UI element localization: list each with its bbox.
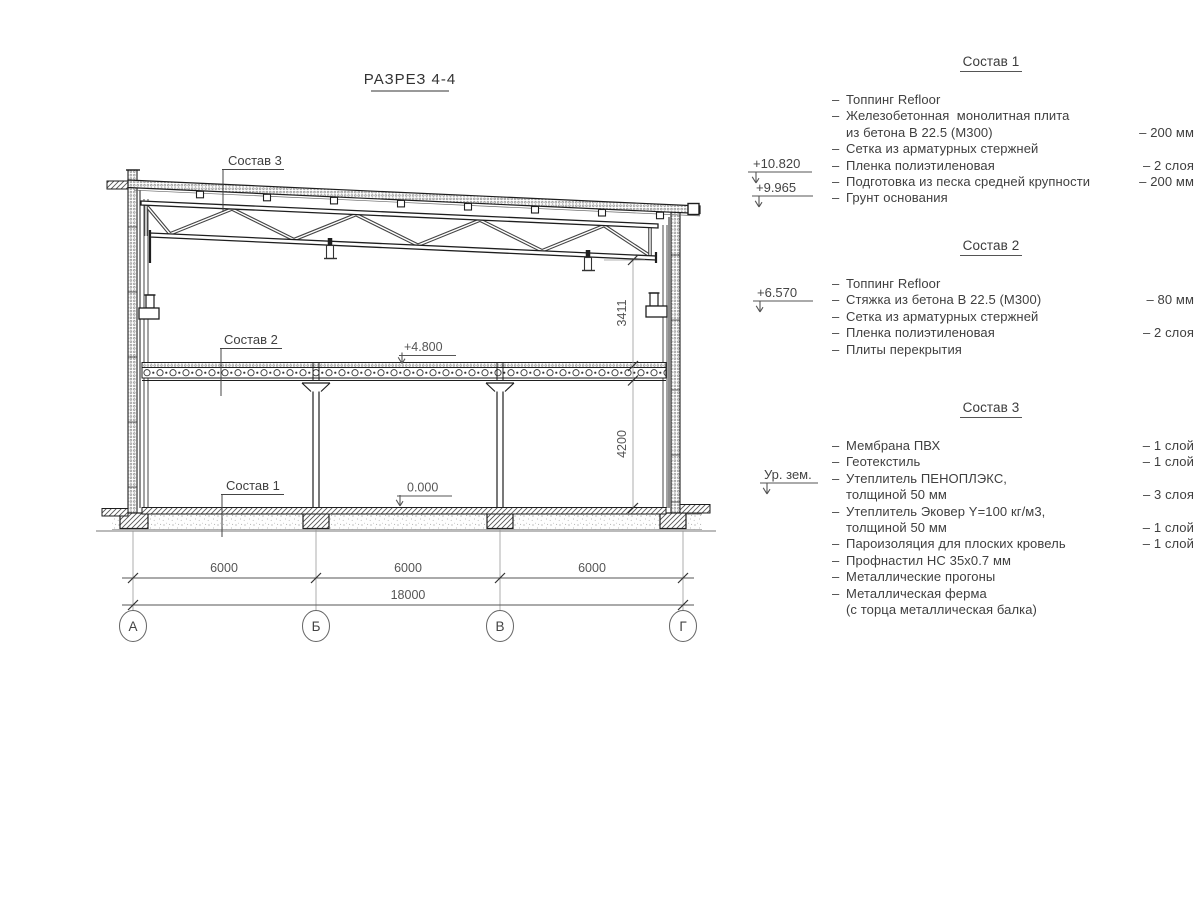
parapet-flashing xyxy=(107,181,128,189)
row-dash: – xyxy=(832,569,846,585)
row-text: Пароизоляция для плоских кровель xyxy=(846,536,1143,552)
row-text: Топпинг Refloor xyxy=(846,276,1194,292)
composition-row: – Топпинг Refloor xyxy=(832,92,1194,108)
row-text: Железобетонная монолитная плита xyxy=(846,108,1194,124)
composition-3-rows: – Мембрана ПВХ – 1 слой – Геотекстиль – … xyxy=(832,438,1194,618)
row-text: Геотекстиль xyxy=(846,454,1143,470)
horizontal-dimensions: 6000 6000 6000 18000 xyxy=(122,561,694,610)
row-value: – 80 мм xyxy=(1147,292,1195,308)
row-value: – 1 слой xyxy=(1143,438,1194,454)
dim-span-1: 6000 xyxy=(210,561,238,575)
row-dash: – xyxy=(832,471,846,487)
row-text: Профнастил НС 35х0.7 мм xyxy=(846,553,1194,569)
composition-row: – Грунт основания xyxy=(832,190,1194,206)
drawing-sheet: А Б В Г 6000 6000 6000 18000 3 xyxy=(0,0,1200,900)
composition-row: – Профнастил НС 35х0.7 мм xyxy=(832,553,1194,569)
row-text: из бетона В 22.5 (М300) xyxy=(846,125,1139,141)
composition-3-title: Состав 3 xyxy=(832,400,1150,418)
row-dash: – xyxy=(832,141,846,157)
row-text: Подготовка из песка средней крупности xyxy=(846,174,1139,190)
row-text: Грунт основания xyxy=(846,190,1194,206)
row-dash: – xyxy=(832,158,846,174)
axis-label-b: Б xyxy=(312,619,321,634)
axis-grid: А Б В Г xyxy=(120,529,697,642)
row-text: (с торца металлическая балка) xyxy=(846,602,1194,618)
row-dash: – xyxy=(832,276,846,292)
row-text: Сетка из арматурных стержней xyxy=(846,309,1194,325)
composition-row: толщиной 50 мм – 1 слой xyxy=(832,520,1194,536)
row-dash: – xyxy=(832,309,846,325)
composition-row: – Мембрана ПВХ – 1 слой xyxy=(832,438,1194,454)
row-text: Пленка полиэтиленовая xyxy=(846,325,1143,341)
row-text: толщиной 50 мм xyxy=(846,487,1143,503)
composition-row: – Подготовка из песка средней крупности … xyxy=(832,174,1194,190)
row-value: – 2 слоя xyxy=(1143,158,1194,174)
composition-row: – Сетка из арматурных стержней xyxy=(832,309,1194,325)
row-dash: – xyxy=(832,325,846,341)
row-dash xyxy=(832,520,846,536)
row-text: Топпинг Refloor xyxy=(846,92,1194,108)
left-corbel xyxy=(139,295,159,319)
page-title: РАЗРЕЗ 4-4 xyxy=(364,71,457,88)
composition-row: – Стяжка из бетона В 22.5 (М300) – 80 мм xyxy=(832,292,1194,308)
composition-1-title: Состав 1 xyxy=(832,54,1150,72)
row-text: Сетка из арматурных стержней xyxy=(846,141,1194,157)
composition-row: (с торца металлическая балка) xyxy=(832,602,1194,618)
dim-span-2: 6000 xyxy=(394,561,422,575)
axis-label-a: А xyxy=(128,619,137,634)
row-dash: – xyxy=(832,586,846,602)
label-sostav-2: Состав 2 xyxy=(224,332,278,347)
row-value: – 1 слой xyxy=(1143,454,1194,470)
composition-2-rows: – Топпинг Refloor – Стяжка из бетона В 2… xyxy=(832,276,1194,358)
row-dash: – xyxy=(832,504,846,520)
composition-row: – Пароизоляция для плоских кровель – 1 с… xyxy=(832,536,1194,552)
sand-bed xyxy=(112,514,702,530)
row-dash xyxy=(832,602,846,618)
axis-label-v: В xyxy=(495,619,504,634)
floor-finish-layer xyxy=(142,508,666,515)
composition-row: – Утеплитель Эковер Y=100 кг/м3, xyxy=(832,504,1194,520)
label-sostav-1: Состав 1 xyxy=(226,478,280,493)
composition-row: толщиной 50 мм – 3 слоя xyxy=(832,487,1194,503)
row-text: Утеплитель Эковер Y=100 кг/м3, xyxy=(846,504,1194,520)
composition-1: Состав 1 – Топпинг Refloor – Железобетон… xyxy=(832,54,1194,207)
composition-row: – Утеплитель ПЕНОПЛЭКС, xyxy=(832,471,1194,487)
row-value: – 2 слоя xyxy=(1143,325,1194,341)
composition-row: – Железобетонная монолитная плита xyxy=(832,108,1194,124)
composition-1-rows: – Топпинг Refloor – Железобетонная монол… xyxy=(832,92,1194,207)
row-dash: – xyxy=(832,536,846,552)
row-dash: – xyxy=(832,92,846,108)
composition-row: – Геотекстиль – 1 слой xyxy=(832,454,1194,470)
row-text: толщиной 50 мм xyxy=(846,520,1143,536)
dim-span-3: 6000 xyxy=(578,561,606,575)
row-dash: – xyxy=(832,108,846,124)
axis-label-g: Г xyxy=(679,619,687,634)
row-dash xyxy=(832,487,846,503)
title-group: РАЗРЕЗ 4-4 xyxy=(364,71,457,91)
column-capitals xyxy=(302,383,514,392)
composition-2-title: Состав 2 xyxy=(832,238,1150,256)
composition-row: – Сетка из арматурных стержней xyxy=(832,141,1194,157)
row-text: Плиты перекрытия xyxy=(846,342,1194,358)
elevation-roof-high: +10.820 xyxy=(753,156,800,171)
row-dash: – xyxy=(832,342,846,358)
roof-edge-dam xyxy=(688,204,699,215)
row-text: Пленка полиэтиленовая xyxy=(846,158,1143,174)
elevation-marks-list: +10.820 +9.965 +6.570 Ур. зем. xyxy=(748,156,818,494)
row-value: – 200 мм xyxy=(1139,174,1194,190)
composition-2: Состав 2 – Топпинг Refloor – Стяжка из б… xyxy=(832,238,1194,358)
dim-lower-height: 4200 xyxy=(615,430,629,458)
label-sostav-3: Состав 3 xyxy=(228,153,282,168)
composition-row: – Плиты перекрытия xyxy=(832,342,1194,358)
composition-row: – Топпинг Refloor xyxy=(832,276,1194,292)
row-dash: – xyxy=(832,190,846,206)
row-value: – 1 слой xyxy=(1143,520,1194,536)
left-apron xyxy=(102,509,128,517)
row-text: Металлические прогоны xyxy=(846,569,1194,585)
row-dash: – xyxy=(832,454,846,470)
elevation-crane: +6.570 xyxy=(757,285,797,300)
vertical-dimensions: 3411 4200 xyxy=(604,255,645,513)
composition-row: – Металлическая ферма xyxy=(832,586,1194,602)
row-dash: – xyxy=(832,553,846,569)
row-value: – 200 мм xyxy=(1139,125,1194,141)
row-text: Металлическая ферма xyxy=(846,586,1194,602)
composition-3: Состав 3 – Мембрана ПВХ – 1 слой – Геоте… xyxy=(832,400,1194,618)
row-text: Стяжка из бетона В 22.5 (М300) xyxy=(846,292,1147,308)
row-dash: – xyxy=(832,438,846,454)
row-dash: – xyxy=(832,174,846,190)
row-value: – 3 слоя xyxy=(1143,487,1194,503)
composition-row: – Металлические прогоны xyxy=(832,569,1194,585)
composition-row: – Пленка полиэтиленовая – 2 слоя xyxy=(832,158,1194,174)
right-corbel xyxy=(646,293,667,317)
ground-slab xyxy=(96,505,716,532)
row-dash xyxy=(832,125,846,141)
right-apron xyxy=(680,505,710,514)
row-dash: – xyxy=(832,292,846,308)
composition-row: из бетона В 22.5 (М300) – 200 мм xyxy=(832,125,1194,141)
dim-total: 18000 xyxy=(391,588,426,602)
left-wall xyxy=(107,170,159,513)
elevation-ground: Ур. зем. xyxy=(764,467,812,482)
elevation-zero: 0.000 xyxy=(407,481,438,495)
elevation-floor: +4.800 xyxy=(404,340,443,354)
row-value: – 1 слой xyxy=(1143,536,1194,552)
row-text: Мембрана ПВХ xyxy=(846,438,1143,454)
dim-upper-height: 3411 xyxy=(615,300,629,327)
composition-row: – Пленка полиэтиленовая – 2 слоя xyxy=(832,325,1194,341)
elevation-roof-low: +9.965 xyxy=(756,180,796,195)
roof-deck xyxy=(128,180,700,216)
row-text: Утеплитель ПЕНОПЛЭКС, xyxy=(846,471,1194,487)
